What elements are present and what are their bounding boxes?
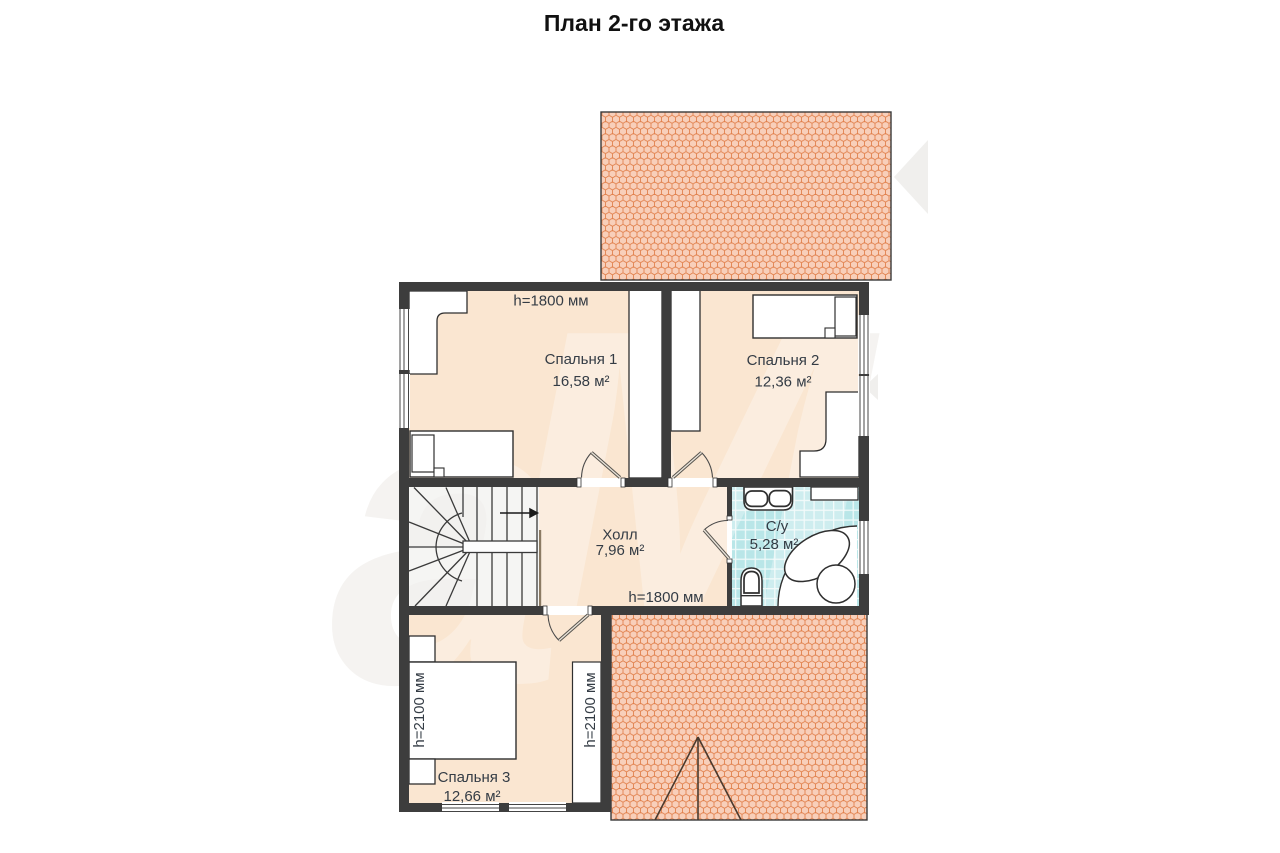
svg-text:Холл: Холл [602, 527, 637, 544]
svg-text:12,66 м²: 12,66 м² [443, 788, 500, 805]
svg-text:h=1800 мм: h=1800 мм [513, 293, 588, 310]
svg-text:h=2100 мм: h=2100 мм [411, 672, 428, 747]
svg-text:План 2-го этажа: План 2-го этажа [544, 10, 724, 36]
svg-text:7,96 м²: 7,96 м² [596, 542, 645, 559]
svg-text:h=1800 мм: h=1800 мм [628, 589, 703, 606]
svg-text:5,28 м²: 5,28 м² [750, 536, 799, 553]
svg-text:Спальня 3: Спальня 3 [438, 769, 511, 786]
svg-text:12,36 м²: 12,36 м² [754, 374, 811, 391]
svg-text:16,58 м²: 16,58 м² [552, 373, 609, 390]
svg-text:С/у: С/у [766, 518, 789, 535]
svg-text:h=2100 мм: h=2100 мм [582, 672, 599, 747]
svg-text:Спальня 2: Спальня 2 [747, 352, 820, 369]
svg-text:Спальня 1: Спальня 1 [545, 351, 618, 368]
